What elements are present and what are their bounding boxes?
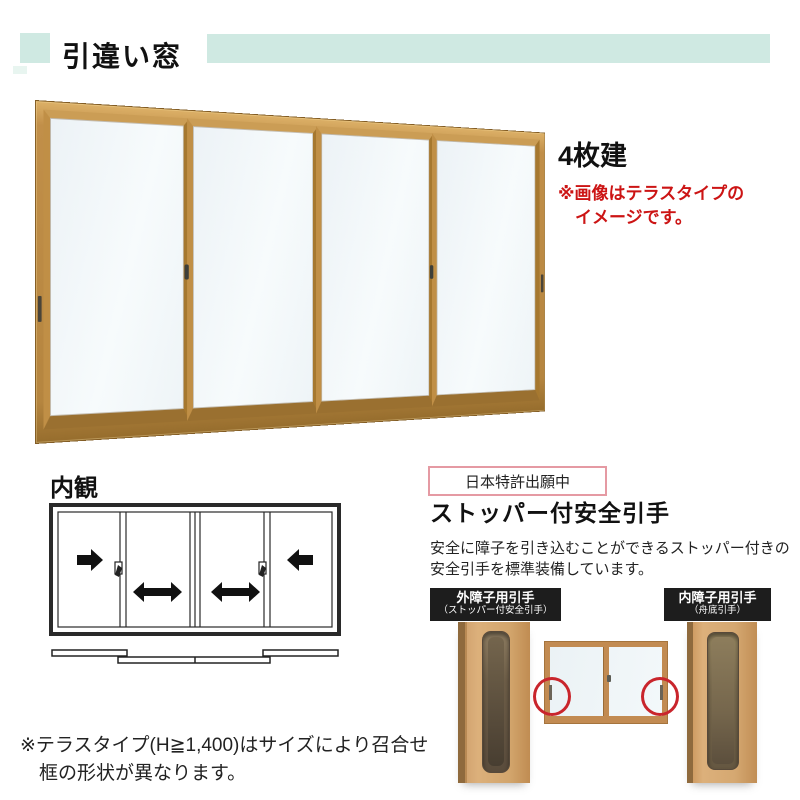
right-handle-highlight-circle (641, 677, 679, 716)
outer-sash-handle-subtitle: （ストッパー付安全引手） (430, 605, 561, 617)
plan-view-tracks (52, 650, 338, 663)
mini-crescent-lock-icon (607, 675, 611, 682)
header-accent-square (20, 33, 50, 63)
safety-handle-description-line1: 安全に障子を引き込むことができるストッパー付きの (430, 538, 790, 559)
window-track (44, 110, 540, 430)
safety-handle-heading: ストッパー付安全引手 (430, 494, 670, 528)
product-photo-4panel-window (35, 100, 545, 444)
terrace-type-note-line2: イメージです。 (558, 206, 744, 230)
page-title: 引違い窓 (62, 35, 182, 75)
window-pane-4 (432, 133, 540, 407)
header-accent-band (207, 34, 770, 63)
window-pane-3 (316, 126, 434, 414)
inner-sash-handle-label: 内障子用引手 （舟底引手） (664, 588, 771, 621)
window-outer-frame (35, 100, 545, 444)
window-pane-2 (187, 118, 318, 421)
stopper-safety-handle-icon (482, 631, 510, 773)
interior-view-heading: 内観 (50, 468, 98, 503)
terrace-type-note-line1: ※画像はテラスタイプの (558, 182, 744, 206)
terrace-size-footnote-line1: ※テラスタイプ(H≧1,400)はサイズにより召合せ (20, 732, 428, 760)
header-accent-square-shadow (13, 66, 27, 74)
terrace-size-footnote: ※テラスタイプ(H≧1,400)はサイズにより召合せ 框の形状が異なります。 (20, 732, 428, 788)
handle-recess-slot (488, 637, 504, 766)
terrace-type-note: ※画像はテラスタイプの イメージです。 (558, 182, 744, 230)
panel-count-label: 4枚建 (558, 134, 627, 173)
safety-handle-description: 安全に障子を引き込むことができるストッパー付きの 安全引手を標準装備しています。 (430, 538, 790, 580)
outer-sash-handle-title: 外障子用引手 (430, 590, 561, 605)
handle-recess-slot (712, 637, 734, 764)
outer-sash-handle-photo (458, 622, 530, 783)
safety-handle-description-line2: 安全引手を標準装備しています。 (430, 559, 790, 580)
right-flush-pull-icon (541, 275, 543, 293)
handle-location-diagram (545, 642, 667, 723)
left-handle-highlight-circle (533, 677, 571, 716)
left-flush-pull-icon (38, 296, 42, 322)
inner-sash-handle-subtitle: （舟底引手） (664, 605, 771, 617)
crescent-lock-icon (184, 264, 188, 279)
outer-sash-handle-label: 外障子用引手 （ストッパー付安全引手） (430, 588, 561, 621)
inner-sash-handle-title: 内障子用引手 (664, 590, 771, 605)
patent-pending-label: 日本特許出願中 (465, 471, 570, 492)
interior-view-diagram (49, 503, 341, 669)
crescent-lock-icon (430, 265, 433, 279)
inner-sash-handle-photo (687, 622, 757, 783)
boat-bottom-handle-icon (707, 632, 739, 770)
terrace-size-footnote-line2: 框の形状が異なります。 (20, 760, 428, 788)
window-pane-1 (44, 110, 190, 430)
patent-pending-badge: 日本特許出願中 (428, 466, 607, 496)
